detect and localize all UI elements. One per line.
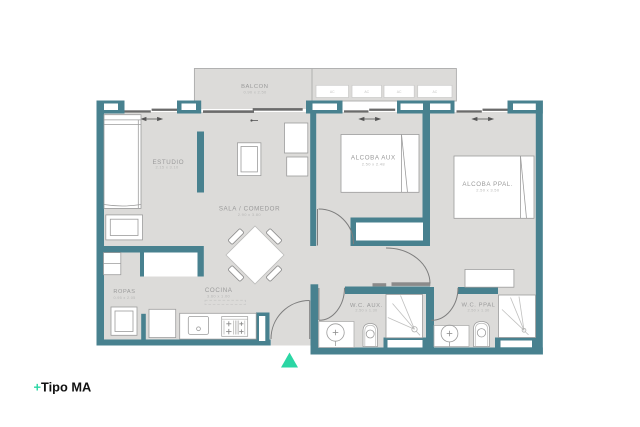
svg-text:2.50 x 3.50: 2.50 x 3.50 xyxy=(476,187,500,192)
svg-text:3.60 x 1.00: 3.60 x 1.00 xyxy=(207,294,231,299)
svg-text:2.50 x 2.48: 2.50 x 2.48 xyxy=(362,161,386,166)
svg-text:AC: AC xyxy=(364,90,369,94)
svg-text:0.90 x 2.50: 0.90 x 2.50 xyxy=(243,90,267,95)
svg-text:AC: AC xyxy=(397,90,402,94)
svg-text:AC: AC xyxy=(330,90,335,94)
svg-text:2.15 x 3.10: 2.15 x 3.10 xyxy=(155,165,179,170)
svg-text:2.90 x 3.80: 2.90 x 3.80 xyxy=(238,212,262,217)
svg-text:ROPAS: ROPAS xyxy=(113,289,135,295)
svg-text:0.95 x 2.05: 0.95 x 2.05 xyxy=(113,296,135,300)
svg-text:+Tipo MA: +Tipo MA xyxy=(34,380,92,395)
svg-text:2.50 x 1.30: 2.50 x 1.30 xyxy=(355,309,377,313)
svg-text:2.50 x 1.30: 2.50 x 1.30 xyxy=(467,309,489,313)
svg-text:AC: AC xyxy=(432,90,437,94)
